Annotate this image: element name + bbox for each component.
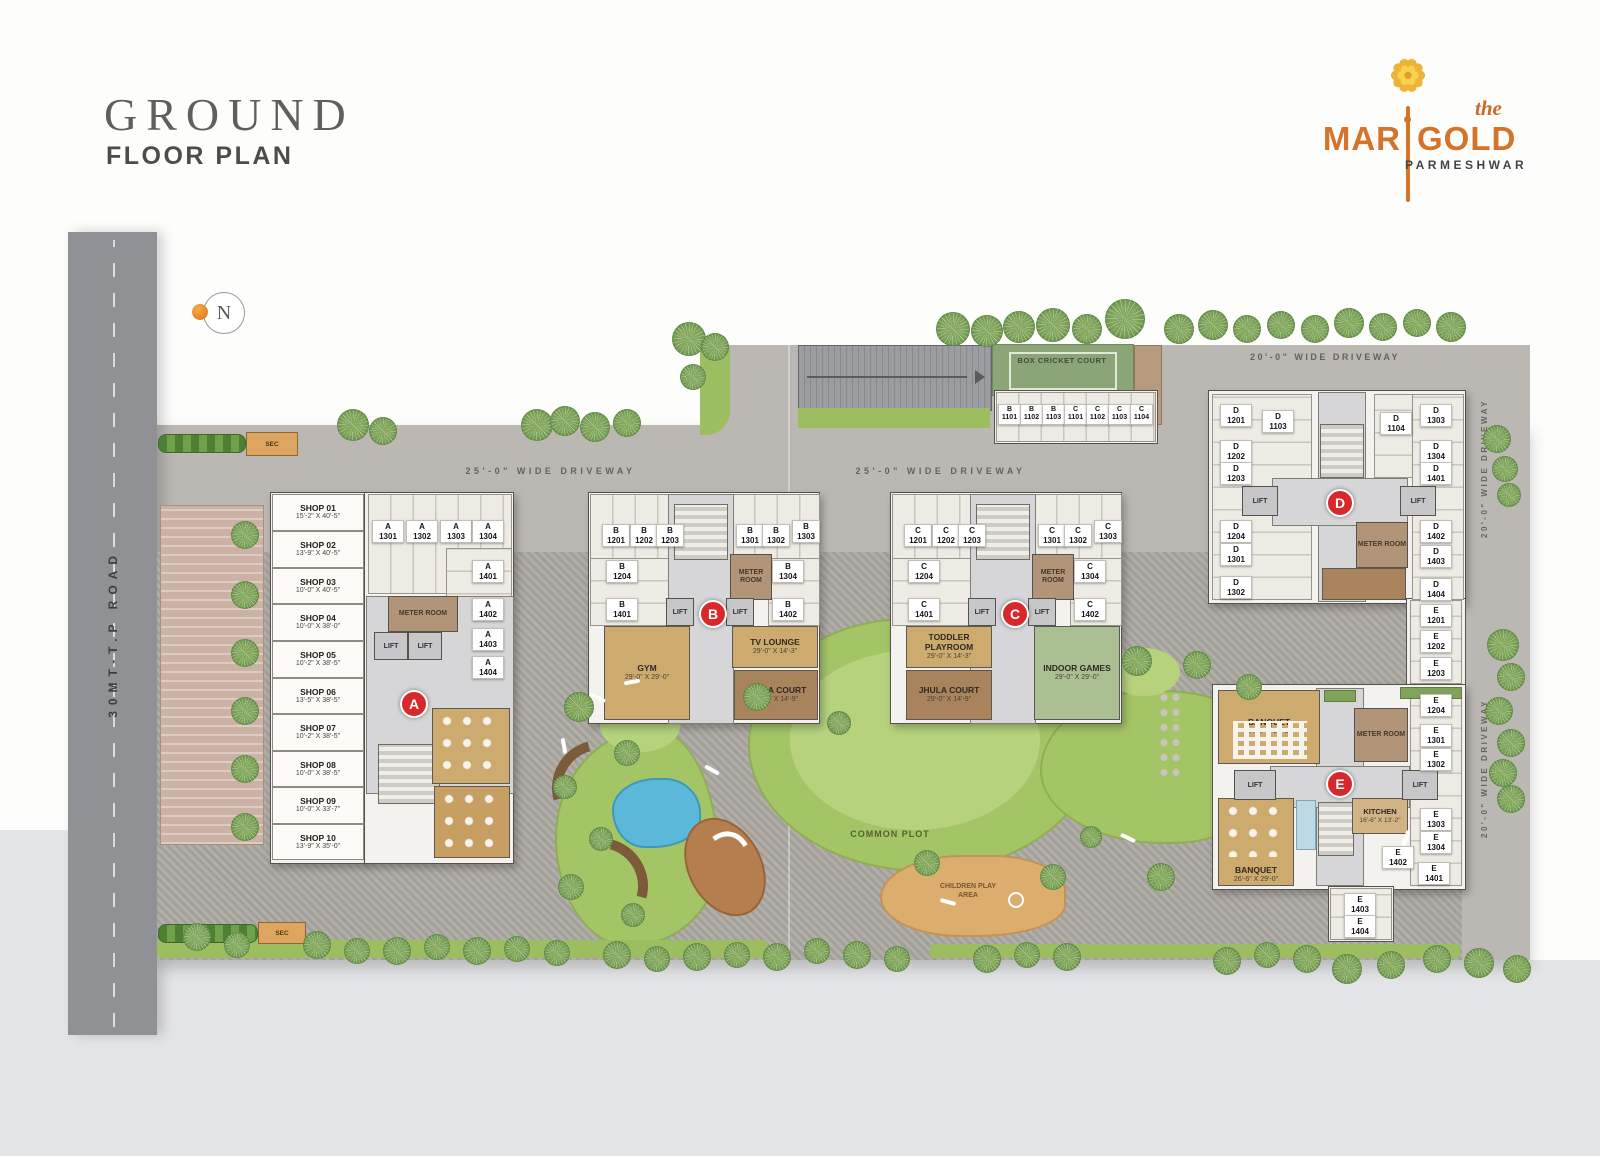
unit-c-1303: C 1303 <box>1094 520 1122 543</box>
play-equipment-icon <box>1008 892 1024 908</box>
tree-icon <box>683 943 711 971</box>
tree-icon <box>1147 863 1175 891</box>
box-cricket-label: BOX CRICKET COURT <box>1008 356 1116 365</box>
unit-b-1103: B 1103 <box>1042 404 1065 425</box>
tree-icon <box>224 932 250 958</box>
jhula-court-c: JHULA COURT29'-0" X 14'-9" <box>906 670 992 720</box>
unit-c-1301: C 1301 <box>1038 524 1066 547</box>
unit-a-1304: A 1304 <box>472 520 504 543</box>
unit-e-1304: E 1304 <box>1420 831 1452 854</box>
unit-b-1202: B 1202 <box>630 524 658 547</box>
unit-a-1403: A 1403 <box>472 628 504 651</box>
meter-room: METER ROOM <box>1356 522 1408 568</box>
tree-icon <box>884 946 910 972</box>
unit-d-1402: D 1402 <box>1420 520 1452 543</box>
shop-04: SHOP 0410'-0" X 38'-0" <box>272 604 364 641</box>
room-dim: 26'-6" X 29'-0" <box>1234 876 1278 884</box>
tree-icon <box>1464 948 1494 978</box>
chair-grid <box>1233 721 1307 759</box>
shop-name: SHOP 01 <box>300 503 336 513</box>
block-c-marker: C <box>1001 600 1029 628</box>
driveway-label-25-west: 25'-0" WIDE DRIVEWAY <box>448 466 653 476</box>
tree-icon <box>1487 629 1519 661</box>
unit-d-1403: D 1403 <box>1420 545 1452 568</box>
shop-09: SHOP 0910'-0" X 33'-7" <box>272 787 364 824</box>
shop-parking-strip <box>160 505 264 845</box>
unit-d-1303: D 1303 <box>1420 404 1452 427</box>
unit-e-1404: E 1404 <box>1344 915 1376 938</box>
tree-icon <box>613 409 641 437</box>
tree-icon <box>1014 942 1040 968</box>
lift: LIFT <box>408 632 442 660</box>
shop-10: SHOP 1013'-9" X 35'-0" <box>272 824 364 860</box>
unit-d-1201: D 1201 <box>1220 404 1252 427</box>
tree-icon <box>303 931 331 959</box>
tree-icon <box>743 683 771 711</box>
unit-c-1103: C 1103 <box>1108 404 1131 425</box>
lift: LIFT <box>666 598 694 626</box>
block-e-marker: E <box>1326 770 1354 798</box>
shop-name: SHOP 07 <box>300 723 336 733</box>
room-dim: 29'-0" X 29'-0" <box>1055 674 1099 682</box>
room-name: INDOOR GAMES <box>1043 664 1111 674</box>
lift: LIFT <box>968 598 996 626</box>
north-compass: N <box>203 292 245 334</box>
tree-icon <box>1497 663 1525 691</box>
unit-d-1204: D 1204 <box>1220 520 1252 543</box>
shop-dim: 10'-2" X 38'-5" <box>296 733 340 741</box>
kitchen-room: KITCHEN16'-6" X 13'-2" <box>1352 798 1408 834</box>
tp-road: 30MT-T.P ROAD <box>68 232 157 1035</box>
ramp-arrow-head-icon <box>975 370 985 384</box>
tree-icon <box>1198 310 1228 340</box>
common-plot-label: COMMON PLOT <box>834 829 946 839</box>
meter-room: METER ROOM <box>730 554 772 600</box>
tree-icon <box>1003 311 1035 343</box>
tree-icon <box>644 946 670 972</box>
marigold-flower-icon <box>1382 46 1434 108</box>
shop-dim: 15'-2" X 40'-5" <box>296 513 340 521</box>
tree-icon <box>603 941 631 969</box>
unit-e-1401: E 1401 <box>1418 862 1450 885</box>
pantry <box>1296 800 1316 850</box>
tree-icon <box>843 941 871 969</box>
tree-icon <box>914 850 940 876</box>
tree-icon <box>1053 943 1081 971</box>
block-b-marker: B <box>699 600 727 628</box>
unit-e-1301: E 1301 <box>1420 724 1452 747</box>
tree-icon <box>504 936 530 962</box>
tree-icon <box>1301 315 1329 343</box>
tree-icon <box>1485 697 1513 725</box>
tree-icon <box>1183 651 1211 679</box>
tree-icon <box>1483 425 1511 453</box>
shop-07: SHOP 0710'-2" X 38'-5" <box>272 714 364 751</box>
tree-icon <box>1036 308 1070 342</box>
unit-b-1304: B 1304 <box>772 560 804 583</box>
unit-c-1402: C 1402 <box>1074 598 1106 621</box>
grass-strip <box>798 408 990 428</box>
unit-c-1401: C 1401 <box>908 598 940 621</box>
unit-c-1202: C 1202 <box>932 524 960 547</box>
tree-icon <box>580 412 610 442</box>
shop-01: SHOP 0115'-2" X 40'-5" <box>272 494 364 531</box>
lift: LIFT <box>1402 770 1438 800</box>
tree-icon <box>544 940 570 966</box>
block-d-service <box>1322 568 1406 600</box>
tree-icon <box>1436 312 1466 342</box>
staircase <box>1320 424 1364 478</box>
page-title: GROUND <box>104 88 355 141</box>
unit-c-1304: C 1304 <box>1074 560 1106 583</box>
tree-icon <box>1267 311 1295 339</box>
tables <box>441 715 503 777</box>
tree-icon <box>1503 955 1531 983</box>
shop-name: SHOP 04 <box>300 613 336 623</box>
lift: LIFT <box>1242 486 1278 516</box>
security-cabin: SEC <box>258 922 306 944</box>
tree-icon <box>231 755 259 783</box>
ramp-arrow-line <box>807 376 967 378</box>
tree-icon <box>1236 674 1262 700</box>
tree-icon <box>344 938 370 964</box>
meter-room: METER ROOM <box>1032 554 1074 600</box>
tree-icon <box>804 938 830 964</box>
driveway-label-20-north: 20'-0" WIDE DRIVEWAY <box>1240 352 1410 362</box>
tv-lounge-room: TV LOUNGE29'-0" X 14'-3" <box>732 626 818 668</box>
shop-name: SHOP 10 <box>300 833 336 843</box>
shop-05: SHOP 0510'-2" X 38'-5" <box>272 641 364 678</box>
children-play-label: CHILDREN PLAY AREA <box>936 882 1000 900</box>
hedge <box>158 434 246 453</box>
tree-icon <box>1080 826 1102 848</box>
unit-d-1302: D 1302 <box>1220 576 1252 599</box>
room-name: GYM <box>637 664 656 674</box>
unit-b-1303: B 1303 <box>792 520 820 543</box>
room-name: JHULA COURT <box>919 686 980 696</box>
unit-e-1204: E 1204 <box>1420 694 1452 717</box>
shop-02: SHOP 0213'-9" X 40'-5" <box>272 531 364 568</box>
unit-b-1101: B 1101 <box>998 404 1021 425</box>
shop-dim: 13'-9" X 40'-5" <box>296 550 340 558</box>
tree-icon <box>1377 951 1405 979</box>
tree-icon <box>1403 309 1431 337</box>
tree-icon <box>936 312 970 346</box>
banquet-hall-1: BANQUET 34'-0" X 25'-9" <box>1218 690 1320 764</box>
unit-a-1402: A 1402 <box>472 598 504 621</box>
parking-stalls <box>1374 394 1414 478</box>
tree-icon <box>1072 314 1102 344</box>
shop-dim: 10'-2" X 38'-5" <box>296 660 340 668</box>
lift: LIFT <box>726 598 754 626</box>
tree-icon <box>724 942 750 968</box>
brand-logo: the MAR GOLD PARMESHWAR <box>1285 44 1525 174</box>
driveway-label-25-east: 25'-0" WIDE DRIVEWAY <box>838 466 1043 476</box>
lift: LIFT <box>374 632 408 660</box>
page-subtitle: FLOOR PLAN <box>106 142 294 171</box>
unit-a-1401: A 1401 <box>472 560 504 583</box>
unit-c-1101: C 1101 <box>1064 404 1087 425</box>
tree-icon <box>337 409 369 441</box>
unit-b-1201: B 1201 <box>602 524 630 547</box>
unit-d-1404: D 1404 <box>1420 578 1452 601</box>
shop-dim: 10'-0" X 38'-0" <box>296 623 340 631</box>
unit-c-1204: C 1204 <box>908 560 940 583</box>
unit-d-1202: D 1202 <box>1220 440 1252 463</box>
tree-icon <box>231 521 259 549</box>
unit-d-1401: D 1401 <box>1420 462 1452 485</box>
shop-06: SHOP 0613'-5" X 38'-5" <box>272 678 364 714</box>
room-name: TV LOUNGE <box>750 638 800 648</box>
brand-name-right: GOLD <box>1417 120 1516 158</box>
unit-d-1104: D 1104 <box>1380 412 1412 435</box>
block-a-marker: A <box>400 690 428 718</box>
room-dim: 29'-0" X 14'-3" <box>753 648 797 656</box>
shop-dim: 13'-5" X 38'-5" <box>296 697 340 705</box>
unit-a-1301: A 1301 <box>372 520 404 543</box>
unit-d-1103: D 1103 <box>1262 410 1294 433</box>
unit-b-1302: B 1302 <box>762 524 790 547</box>
lift: LIFT <box>1400 486 1436 516</box>
tree-icon <box>614 740 640 766</box>
tree-icon <box>1254 942 1280 968</box>
tree-icon <box>383 937 411 965</box>
tree-icon <box>1497 729 1525 757</box>
shop-name: SHOP 08 <box>300 760 336 770</box>
banquet-hall-2: BANQUET 26'-6" X 29'-0" <box>1218 798 1294 886</box>
tree-icon <box>1233 315 1261 343</box>
tree-icon <box>424 934 450 960</box>
room-dim: 29'-0" X 14'-9" <box>927 696 971 704</box>
unit-b-1102: B 1102 <box>1020 404 1043 425</box>
lift: LIFT <box>1028 598 1056 626</box>
shop-dim: 13'-9" X 35'-0" <box>296 843 340 851</box>
indoor-games-room: INDOOR GAMES29'-0" X 29'-0" <box>1034 626 1120 720</box>
tree-icon <box>231 639 259 667</box>
tree-icon <box>564 692 594 722</box>
tree-icon <box>1164 314 1194 344</box>
room-name: TODDLER PLAYROOM <box>908 633 990 653</box>
unit-e-1303: E 1303 <box>1420 808 1452 831</box>
tree-icon <box>231 697 259 725</box>
brand-tagline: PARMESHWAR <box>1405 158 1519 172</box>
tables <box>443 793 501 851</box>
tree-icon <box>521 409 553 441</box>
room-dim: 29'-0" X 14'-3" <box>927 653 971 661</box>
stepping-stones <box>1158 690 1184 776</box>
tree-icon <box>1213 947 1241 975</box>
unit-c-1302: C 1302 <box>1064 524 1092 547</box>
tree-icon <box>1122 646 1152 676</box>
block-a-lounge <box>432 708 510 784</box>
unit-b-1401: B 1401 <box>606 598 638 621</box>
tree-icon <box>971 315 1003 347</box>
tree-icon <box>589 827 613 851</box>
unit-c-1201: C 1201 <box>904 524 932 547</box>
shop-name: SHOP 03 <box>300 577 336 587</box>
brand-name-left: MAR <box>1323 120 1401 158</box>
staircase <box>378 744 440 804</box>
shop-name: SHOP 09 <box>300 796 336 806</box>
tree-icon <box>231 813 259 841</box>
unit-e-1203: E 1203 <box>1420 657 1452 680</box>
unit-e-1202: E 1202 <box>1420 630 1452 653</box>
shop-name: SHOP 06 <box>300 687 336 697</box>
gym-room: GYM29'-0" X 29'-0" <box>604 626 690 720</box>
unit-b-1203: B 1203 <box>656 524 684 547</box>
tables <box>1227 805 1287 857</box>
planter <box>1324 690 1356 702</box>
unit-b-1204: B 1204 <box>606 560 638 583</box>
unit-c-1104: C 1104 <box>1130 404 1153 425</box>
tree-icon <box>1332 954 1362 984</box>
basement-ramp <box>798 345 992 411</box>
unit-e-1302: E 1302 <box>1420 748 1452 771</box>
tree-icon <box>558 874 584 900</box>
meter-room: METER ROOM <box>1354 708 1408 762</box>
lift: LIFT <box>1234 770 1276 800</box>
shop-dim: 10'-0" X 38'-5" <box>296 770 340 778</box>
tree-icon <box>1334 308 1364 338</box>
tree-icon <box>680 364 706 390</box>
compass-dot-icon <box>192 304 208 320</box>
tree-icon <box>463 937 491 965</box>
tree-icon <box>183 923 211 951</box>
tree-icon <box>1293 945 1321 973</box>
unit-b-1301: B 1301 <box>736 524 764 547</box>
room-dim: 16'-6" X 13'-2" <box>1359 817 1400 824</box>
tree-icon <box>1105 299 1145 339</box>
tree-icon <box>550 406 580 436</box>
unit-d-1301: D 1301 <box>1220 543 1252 566</box>
shop-08: SHOP 0810'-0" X 38'-5" <box>272 751 364 787</box>
tree-icon <box>553 775 577 799</box>
stem-dot-icon <box>1404 116 1411 123</box>
tree-icon <box>1040 864 1066 890</box>
unit-e-1403: E 1403 <box>1344 893 1376 916</box>
tree-icon <box>1497 483 1521 507</box>
ground-floor-plan: GROUND FLOOR PLAN the MAR GOLD PARMESHWA… <box>0 0 1600 1156</box>
unit-b-1402: B 1402 <box>772 598 804 621</box>
unit-d-1203: D 1203 <box>1220 462 1252 485</box>
block-d-marker: D <box>1326 489 1354 517</box>
unit-d-1304: D 1304 <box>1420 440 1452 463</box>
tree-icon <box>1492 456 1518 482</box>
unit-e-1201: E 1201 <box>1420 604 1452 627</box>
shop-03: SHOP 0310'-0" X 40'-5" <box>272 568 364 604</box>
north-letter: N <box>217 302 231 325</box>
unit-e-1402: E 1402 <box>1382 846 1414 869</box>
tree-icon <box>1497 785 1525 813</box>
driveway-label-20-east-upper: 20'-0" WIDE DRIVEWAY <box>1480 398 1489 538</box>
tree-icon <box>1423 945 1451 973</box>
unit-a-1404: A 1404 <box>472 656 504 679</box>
brand-prefix: the <box>1475 96 1502 121</box>
block-a-cafe <box>434 786 510 858</box>
box-cricket-court <box>992 344 1134 396</box>
tree-icon <box>763 943 791 971</box>
tree-icon <box>973 945 1001 973</box>
tree-icon <box>621 903 645 927</box>
toddler-playroom: TODDLER PLAYROOM29'-0" X 14'-3" <box>906 626 992 668</box>
tree-icon <box>701 333 729 361</box>
unit-c-1203: C 1203 <box>958 524 986 547</box>
shop-dim: 10'-0" X 40'-5" <box>296 587 340 595</box>
unit-c-1102: C 1102 <box>1086 404 1109 425</box>
room-name: BANQUET <box>1235 866 1277 876</box>
tree-icon <box>1489 759 1517 787</box>
unit-a-1303: A 1303 <box>440 520 472 543</box>
staircase <box>1318 802 1354 856</box>
road-label: 30MT-T.P ROAD <box>106 550 120 718</box>
tree-icon <box>1369 313 1397 341</box>
meter-room: METER ROOM <box>388 596 458 632</box>
plaza-arc-marking <box>691 826 758 906</box>
unit-a-1302: A 1302 <box>406 520 438 543</box>
shop-dim: 10'-0" X 33'-7" <box>296 806 340 814</box>
tree-icon <box>231 581 259 609</box>
tree-icon <box>369 417 397 445</box>
security-cabin: SEC <box>246 432 298 456</box>
shop-name: SHOP 02 <box>300 540 336 550</box>
shop-name: SHOP 05 <box>300 650 336 660</box>
room-name: KITCHEN <box>1363 808 1396 817</box>
tree-icon <box>827 711 851 735</box>
